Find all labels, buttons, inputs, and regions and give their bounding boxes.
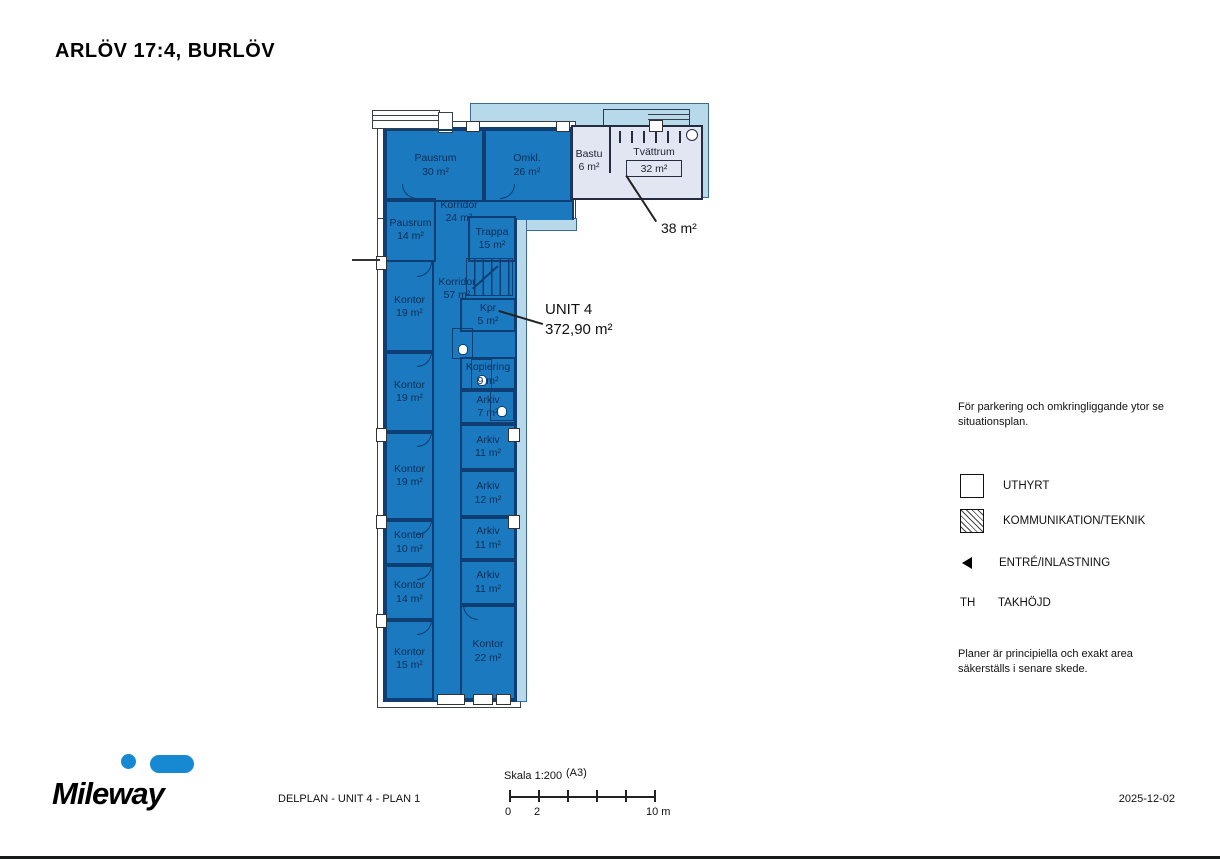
legend-label: ENTRÉ/INLASTNING xyxy=(999,557,1110,569)
room-area: 5 m² xyxy=(478,315,499,328)
room-name: Arkiv xyxy=(476,434,499,447)
scale-tick xyxy=(567,790,569,802)
window xyxy=(376,428,387,442)
bastu-partition xyxy=(609,127,611,173)
room-name: Trappa xyxy=(476,226,509,239)
logo-dot xyxy=(121,754,136,769)
drawing-title: DELPLAN - UNIT 4 - PLAN 1 xyxy=(278,793,420,805)
unit-area: 372,90 m² xyxy=(545,320,613,340)
legend-row-entre: ENTRÉ/INLASTNING xyxy=(962,557,1110,569)
uthyrt-swatch xyxy=(960,474,984,498)
room-omkl: Omkl. 26 m² xyxy=(482,129,572,202)
page-title: ARLÖV 17:4, BURLÖV xyxy=(55,40,275,63)
legend-row-teknik: KOMMUNIKATION/TEKNIK xyxy=(960,509,1145,533)
room-name: Kontor xyxy=(394,294,425,307)
room-arkiv-7: Arkiv 7 m² xyxy=(460,388,516,426)
room-kopiering: Kopiering 9 m² xyxy=(460,357,516,392)
room-area: 14 m² xyxy=(397,230,424,243)
tick xyxy=(667,131,669,143)
room-area: 22 m² xyxy=(475,652,502,665)
scale-number-2: 2 xyxy=(534,806,540,818)
room-area: 12 m² xyxy=(475,494,502,507)
room-area: 9 m² xyxy=(478,375,499,388)
room-area: 6 m² xyxy=(570,161,608,174)
room-arkiv-11c: Arkiv 11 m² xyxy=(460,558,516,607)
scale-label: Skala 1:200 xyxy=(504,770,562,782)
room-name: Pausrum xyxy=(389,217,431,230)
tvattrum-area-box: 32 m² xyxy=(626,160,682,177)
dimension-tick xyxy=(352,259,380,261)
room-area: 19 m² xyxy=(396,392,423,405)
window xyxy=(466,121,480,132)
legend-label: UTHYRT xyxy=(1003,480,1049,492)
unit-name: UNIT 4 xyxy=(545,300,613,320)
room-bastu: Bastu 6 m² xyxy=(570,148,608,174)
room-kontor-19a: Kontor 19 m² xyxy=(385,260,434,354)
room-kpr: Kpr 5 m² xyxy=(460,298,516,332)
disclaimer-note: Planer är principiella och exakt area sä… xyxy=(958,647,1173,678)
room-area: 19 m² xyxy=(396,307,423,320)
room-area: 11 m² xyxy=(475,447,501,460)
entrance-arrow-icon xyxy=(962,557,972,569)
room-area: 11 m² xyxy=(475,583,501,596)
scale-number-start: 0 xyxy=(505,806,511,818)
window xyxy=(437,694,465,705)
room-name: Kontor xyxy=(473,638,504,651)
room-area: 15 m² xyxy=(396,659,423,672)
room-name: Kontor xyxy=(394,463,425,476)
room-name: Tvättrum xyxy=(612,146,696,159)
room-name: Pausrum xyxy=(414,152,456,165)
room-name: Kontor xyxy=(394,379,425,392)
room-name: Kopiering xyxy=(466,361,510,374)
tick xyxy=(679,131,681,143)
date-label: 2025-12-02 xyxy=(1060,793,1175,805)
scale-bar-line xyxy=(509,796,655,798)
tick xyxy=(655,131,657,143)
logo-wordmark: Mileway xyxy=(52,776,164,812)
room-area: 7 m² xyxy=(478,407,499,420)
room-area: 30 m² xyxy=(422,166,449,179)
legend-label: TAKHÖJD xyxy=(998,597,1051,609)
room-kontor-19c: Kontor 19 m² xyxy=(385,430,434,522)
room-kontor-22: Kontor 22 m² xyxy=(460,603,516,700)
paper-size-label: (A3) xyxy=(566,767,587,779)
tick xyxy=(619,131,621,143)
room-name: Kontor xyxy=(394,646,425,659)
room-name: Arkiv xyxy=(476,480,499,493)
bottom-rule xyxy=(0,856,1220,859)
window xyxy=(508,515,520,529)
scale-number-end: 10 m xyxy=(646,806,670,818)
unit-annotation: UNIT 4 372,90 m² xyxy=(545,300,613,339)
legend-row-uthyrt: UTHYRT xyxy=(960,474,1049,498)
window xyxy=(473,694,493,705)
takhojd-symbol: TH xyxy=(960,597,980,609)
legend-row-takhojd: TH TAKHÖJD xyxy=(960,597,1051,609)
room-area: 10 m² xyxy=(396,543,423,556)
room-area: 14 m² xyxy=(396,593,423,606)
room-name: Arkiv xyxy=(476,569,499,582)
window xyxy=(556,121,570,132)
logo-pill xyxy=(150,755,194,773)
room-name: Kontor xyxy=(394,579,425,592)
room-name: Korridor xyxy=(438,276,475,289)
toilet-icon xyxy=(458,344,468,355)
room-tvattrum: Tvättrum xyxy=(612,146,696,159)
window xyxy=(496,694,511,705)
tick xyxy=(643,131,645,143)
tick xyxy=(631,131,633,143)
room-trappa: Trappa 15 m² xyxy=(468,216,516,262)
annex-area-label: 38 m² xyxy=(661,219,697,237)
window xyxy=(508,428,520,442)
room-area: 11 m² xyxy=(475,539,501,552)
room-pausrum-30: Pausrum 30 m² xyxy=(385,129,486,202)
room-arkiv-12: Arkiv 12 m² xyxy=(460,468,516,519)
scale-tick xyxy=(509,790,511,802)
scale-tick xyxy=(654,790,656,802)
window xyxy=(376,515,387,529)
room-area: 15 m² xyxy=(479,239,506,252)
room-name: Kpr xyxy=(480,302,496,315)
legend-label: KOMMUNIKATION/TEKNIK xyxy=(1003,515,1145,527)
drawing-page: ARLÖV 17:4, BURLÖV Bastu 6 m² Tvät xyxy=(0,0,1220,860)
room-name: Arkiv xyxy=(476,394,499,407)
scale-tick xyxy=(538,790,540,802)
parking-note: För parkering och omkringliggande ytor s… xyxy=(958,400,1173,431)
loading-dock-left xyxy=(372,110,440,129)
room-name: Korridor xyxy=(440,199,477,212)
fixture xyxy=(686,129,698,141)
wc-stall xyxy=(452,328,473,359)
room-area: 26 m² xyxy=(514,166,541,179)
room-name: Arkiv xyxy=(476,525,499,538)
teknik-swatch xyxy=(960,509,984,533)
scale-tick xyxy=(625,790,627,802)
room-area: 19 m² xyxy=(396,476,423,489)
window xyxy=(376,614,387,628)
room-name: Omkl. xyxy=(513,152,540,165)
room-name: Bastu xyxy=(570,148,608,161)
scale-tick xyxy=(596,790,598,802)
window xyxy=(649,120,663,132)
